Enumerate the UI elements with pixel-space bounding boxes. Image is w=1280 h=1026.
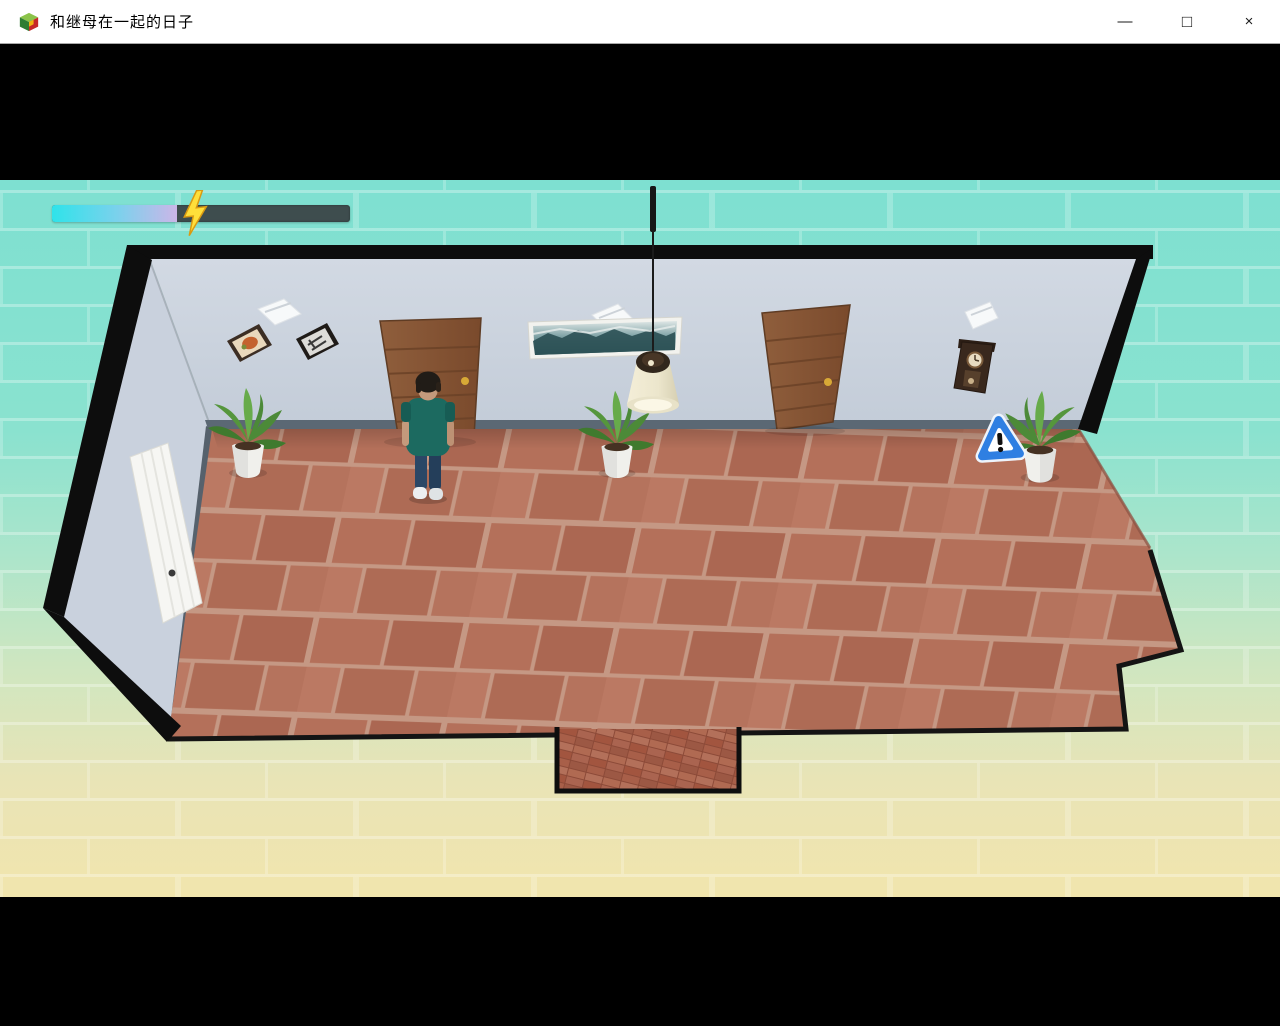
lightning-bolt-icon [173, 190, 215, 238]
game-viewport [0, 45, 1280, 1026]
game-cube-icon [18, 11, 40, 33]
game-scene [0, 180, 1280, 897]
energy-bar-fill [52, 205, 177, 222]
title-bar[interactable]: 和继母在一起的日子 — □ × [0, 0, 1280, 44]
shadow [765, 426, 845, 436]
door-handle [824, 378, 832, 386]
entry-mat [557, 727, 739, 791]
room-scene-canvas [0, 180, 1280, 897]
minimize-button[interactable]: — [1094, 0, 1156, 43]
maximize-button[interactable]: □ [1156, 0, 1218, 43]
door-handle [169, 570, 176, 577]
window-title: 和继母在一起的日子 [50, 11, 194, 32]
door-handle [461, 377, 469, 385]
energy-bar [52, 205, 350, 222]
close-button[interactable]: × [1218, 0, 1280, 43]
